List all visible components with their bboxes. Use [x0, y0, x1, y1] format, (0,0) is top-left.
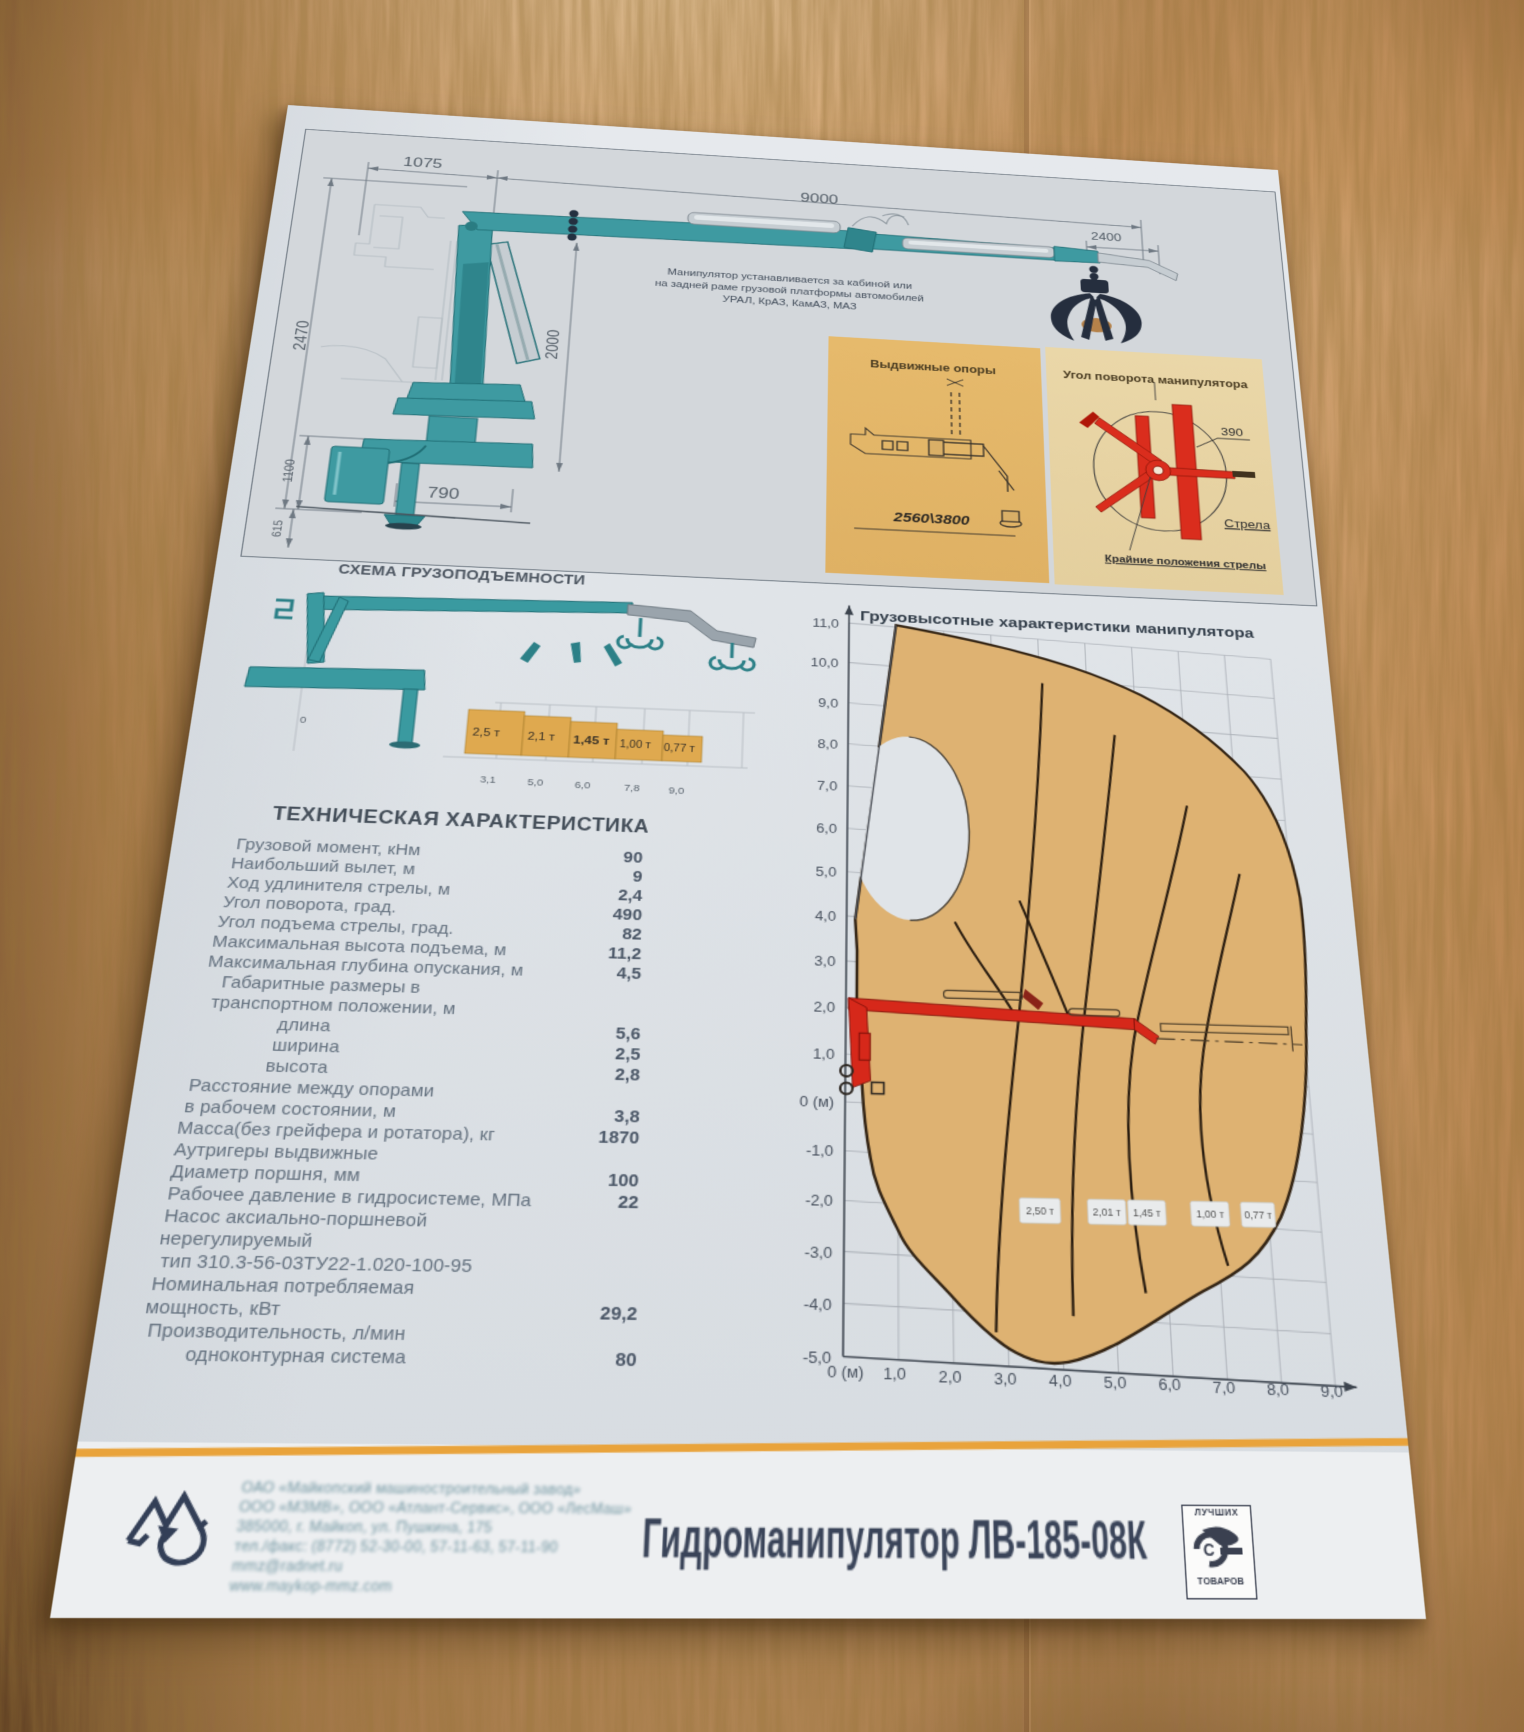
svg-text:2,01 т: 2,01 т: [1093, 1207, 1122, 1219]
svg-text:1,45 т: 1,45 т: [1133, 1207, 1162, 1219]
svg-text:1,00 т: 1,00 т: [1196, 1209, 1225, 1221]
svg-text:2560\3800: 2560\3800: [892, 509, 970, 527]
svg-text:2400: 2400: [1091, 229, 1122, 243]
svg-text:С: С: [1203, 1542, 1216, 1560]
svg-text:0,77 т: 0,77 т: [1244, 1210, 1273, 1222]
svg-text:390: 390: [1220, 425, 1244, 439]
svg-text:2,50 т: 2,50 т: [1026, 1205, 1055, 1217]
svg-text:Стрела: Стрела: [1224, 516, 1272, 532]
svg-text:Крайние положения стрелы: Крайние положения стрелы: [1104, 554, 1266, 572]
